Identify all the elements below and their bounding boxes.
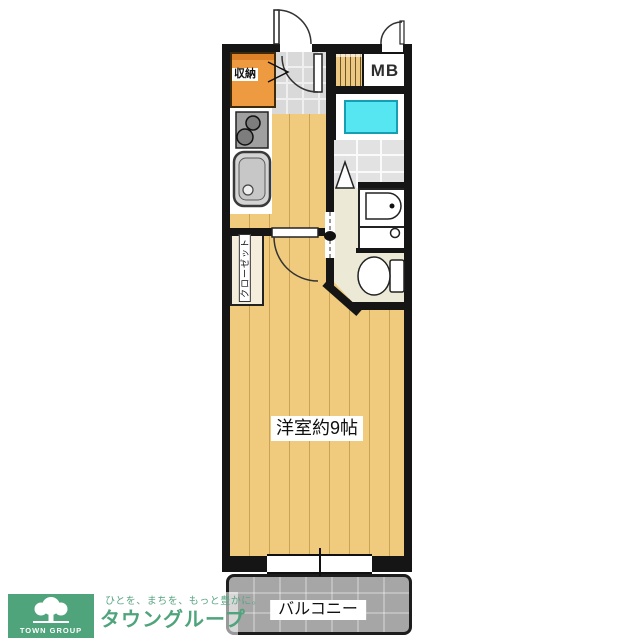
- wall-door-stub: [316, 228, 328, 236]
- main-room-label: 洋室約9帖: [271, 416, 363, 441]
- town-group-logo: TOWN GROUP: [8, 594, 94, 638]
- logo-brand-jp: タウングループ: [100, 609, 246, 632]
- meter-box-label: MB: [371, 61, 399, 81]
- bathtub-icon: [344, 100, 398, 134]
- entrance-door-leaf-icon: [274, 10, 279, 44]
- wall-right: [404, 44, 412, 572]
- wall-under-mb: [334, 86, 404, 92]
- wall-bath-left: [326, 52, 334, 214]
- wall-washroom-bottom: [352, 302, 404, 310]
- washbasin-unit: [358, 188, 408, 228]
- balcony-window: [267, 554, 372, 574]
- bathroom-floor: [334, 140, 404, 188]
- balcony-label: バルコニー: [270, 600, 366, 620]
- storage-label: 収納: [232, 68, 258, 81]
- wall-left: [222, 44, 230, 572]
- mb-door-leaf-icon: [400, 21, 404, 44]
- logo-brand-en: TOWN GROUP: [20, 626, 82, 635]
- mb-door-arc-icon: [381, 22, 402, 44]
- floor-plan-canvas: MB: [0, 0, 640, 640]
- entrance-genkan: [272, 52, 332, 114]
- wall-closet-top: [230, 228, 274, 236]
- entrance-opening: [280, 44, 312, 52]
- wall-toilet-partition: [356, 248, 404, 253]
- kitchen-counter: [230, 104, 272, 214]
- closet-label: クローゼット: [239, 234, 251, 302]
- mb-opening: [382, 44, 403, 52]
- meter-box: MB: [362, 52, 408, 90]
- entrance-door-arc-icon: [277, 10, 311, 44]
- logo-tagline: ひとを、まちを、もっと豊かに。: [105, 596, 262, 608]
- tree-icon: [21, 596, 81, 626]
- wall-bath-washroom: [358, 182, 404, 188]
- wall-washroom-left: [326, 258, 334, 286]
